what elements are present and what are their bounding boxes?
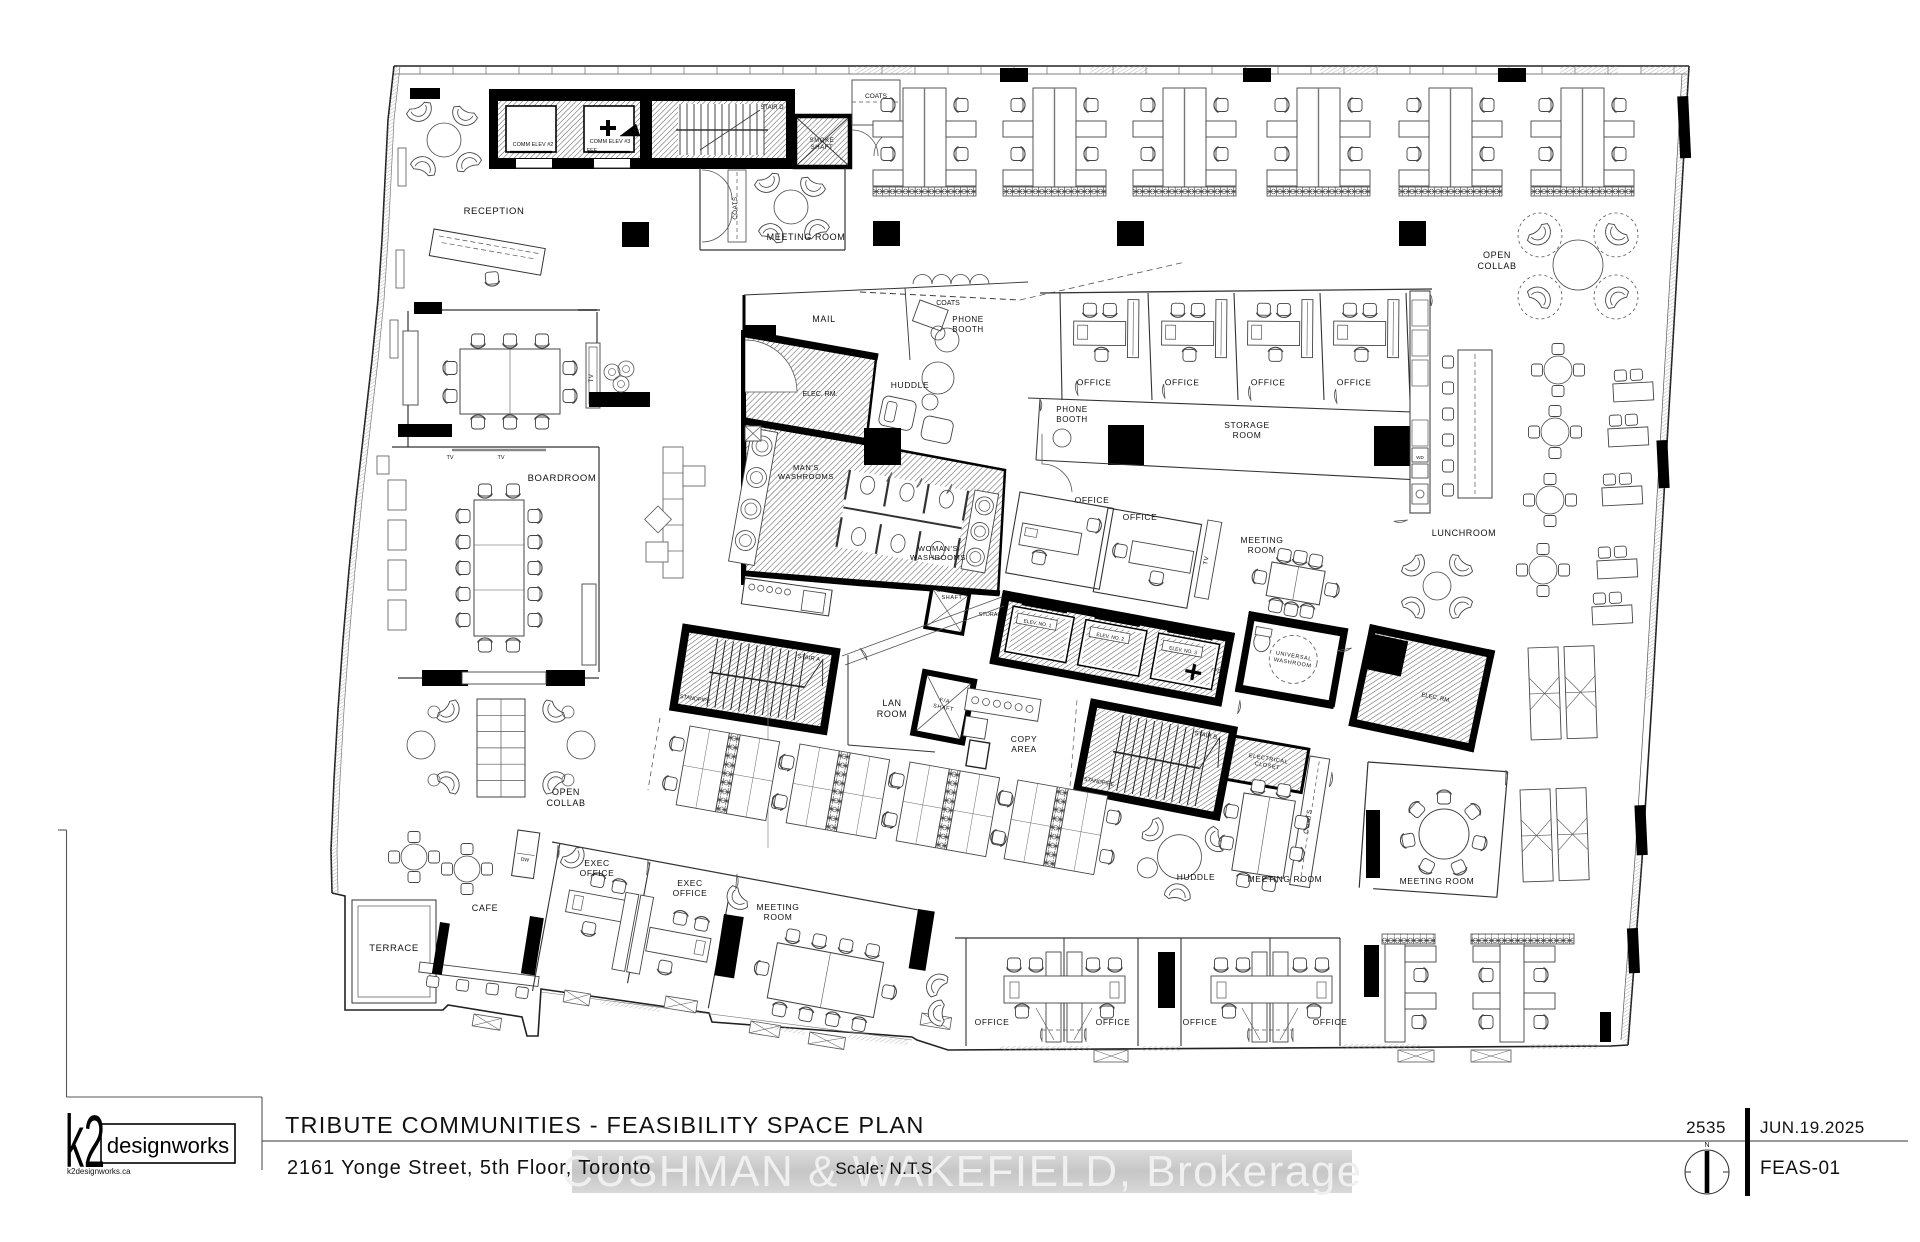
svg-text:MEETING: MEETING	[1241, 535, 1284, 545]
svg-text:MAN'S: MAN'S	[793, 463, 819, 472]
svg-text:OFFICE: OFFICE	[975, 1017, 1010, 1027]
svg-text:LUNCHROOM: LUNCHROOM	[1432, 528, 1496, 538]
svg-text:2161 Yonge Street, 5th Floor,: 2161 Yonge Street, 5th Floor, Toronto	[287, 1157, 651, 1179]
svg-text:OFFICE: OFFICE	[1077, 377, 1112, 387]
svg-text:STORAGE: STORAGE	[1224, 420, 1270, 430]
svg-text:k2designworks.ca: k2designworks.ca	[67, 1167, 131, 1176]
svg-text:FEAS-01: FEAS-01	[1760, 1158, 1841, 1179]
svg-text:OFFICE: OFFICE	[580, 868, 615, 878]
svg-text:COMM ELEV #2: COMM ELEV #2	[513, 142, 554, 148]
svg-text:LAN: LAN	[882, 698, 901, 708]
svg-text:CUSHMAN & WAKEFIELD, Brokerage: CUSHMAN & WAKEFIELD, Brokerage	[561, 1147, 1362, 1196]
svg-text:WOMAN'S: WOMAN'S	[918, 544, 958, 553]
svg-text:TRIBUTE COMMUNITIES - FEASIBIL: TRIBUTE COMMUNITIES - FEASIBILITY SPACE …	[285, 1112, 925, 1138]
svg-text:STAIR D: STAIR D	[760, 105, 784, 111]
svg-text:COATS: COATS	[936, 300, 960, 307]
svg-text:OFFICE: OFFICE	[1183, 1017, 1218, 1027]
svg-text:WASHROOMS: WASHROOMS	[778, 472, 834, 481]
svg-text:OFFICE: OFFICE	[673, 888, 708, 898]
svg-text:SHAFT: SHAFT	[811, 145, 834, 151]
svg-text:MEETING ROOM: MEETING ROOM	[1248, 874, 1323, 884]
svg-text:MEETING: MEETING	[757, 902, 800, 912]
svg-text:OFFICE: OFFICE	[1337, 377, 1372, 387]
svg-text:WD: WD	[1416, 455, 1424, 460]
svg-text:OFFICE: OFFICE	[1096, 1017, 1131, 1027]
svg-text:MAIL: MAIL	[812, 314, 835, 324]
svg-text:PHONE: PHONE	[1056, 405, 1087, 414]
svg-text:RECEPTION: RECEPTION	[464, 206, 525, 217]
svg-text:COLLAB: COLLAB	[546, 798, 585, 808]
svg-text:OPEN: OPEN	[552, 787, 580, 797]
svg-text:TV: TV	[589, 374, 595, 383]
svg-text:HUDDLE: HUDDLE	[1177, 872, 1216, 882]
svg-text:PHONE: PHONE	[952, 315, 983, 324]
svg-text:OFFICE: OFFICE	[1165, 377, 1200, 387]
svg-text:OFFICE: OFFICE	[1251, 377, 1286, 387]
svg-text:EXEC: EXEC	[677, 878, 703, 888]
svg-text:Scale: N.T.S: Scale: N.T.S	[835, 1159, 932, 1178]
svg-text:COLLAB: COLLAB	[1477, 261, 1516, 271]
svg-text:designworks: designworks	[107, 1133, 229, 1158]
svg-text:BOOTH: BOOTH	[1056, 415, 1087, 424]
svg-text:EXEC: EXEC	[584, 858, 610, 868]
svg-text:ROOM: ROOM	[764, 912, 793, 922]
svg-text:2535: 2535	[1686, 1118, 1726, 1137]
svg-text:OPEN: OPEN	[1483, 250, 1511, 260]
svg-text:N: N	[1704, 1142, 1709, 1149]
svg-text:MEETING ROOM: MEETING ROOM	[767, 232, 846, 242]
svg-text:TV: TV	[446, 455, 453, 461]
svg-text:SHAFT: SHAFT	[941, 595, 962, 601]
svg-text:TERRACE: TERRACE	[369, 943, 419, 954]
svg-text:COMM ELEV #3: COMM ELEV #3	[590, 139, 631, 145]
svg-text:BOARDROOM: BOARDROOM	[528, 473, 597, 484]
svg-text:TV: TV	[497, 455, 504, 461]
svg-text:ELEC. RM.: ELEC. RM.	[802, 391, 837, 398]
svg-text:COATS: COATS	[733, 196, 739, 219]
svg-text:SMOKE: SMOKE	[810, 138, 835, 144]
svg-text:COPY: COPY	[1011, 734, 1038, 744]
svg-text:MEETING ROOM: MEETING ROOM	[1400, 876, 1475, 886]
svg-text:CAFE: CAFE	[472, 903, 498, 913]
svg-text:DW: DW	[520, 857, 529, 864]
svg-text:BOOTH: BOOTH	[952, 325, 983, 334]
svg-text:ROOM: ROOM	[1233, 430, 1262, 440]
svg-text:WASHROOMS: WASHROOMS	[910, 553, 966, 562]
svg-text:ROOM: ROOM	[877, 709, 907, 719]
svg-text:ROOM: ROOM	[1248, 545, 1277, 555]
svg-text:OFFICE: OFFICE	[1313, 1017, 1348, 1027]
svg-text:JUN.19.2025: JUN.19.2025	[1760, 1118, 1865, 1137]
svg-text:AREA: AREA	[1011, 744, 1037, 754]
svg-text:OFFICE: OFFICE	[1075, 495, 1110, 505]
svg-text:FFE: FFE	[587, 148, 598, 154]
svg-text:GARBAGE: GARBAGE	[936, 588, 967, 594]
